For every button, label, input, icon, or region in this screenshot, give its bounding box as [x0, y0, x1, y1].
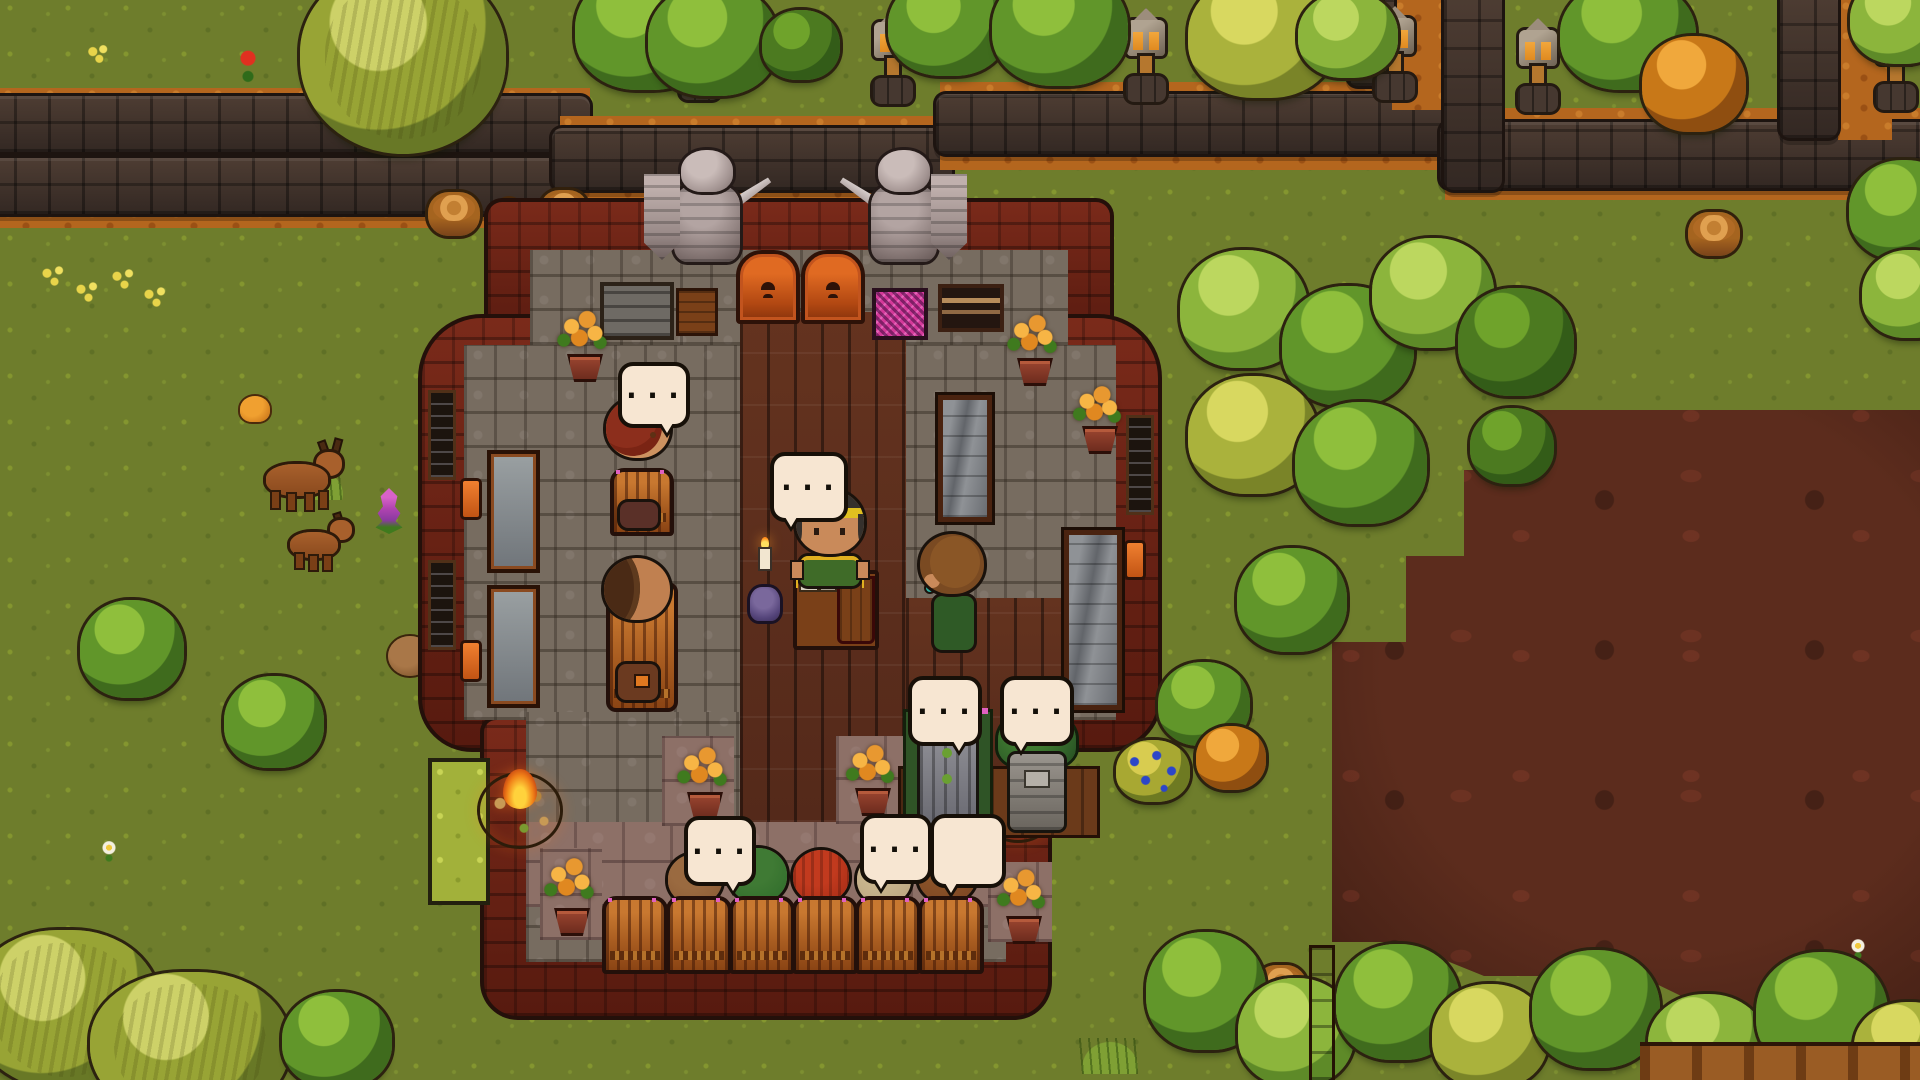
daisy-flower	[1845, 935, 1871, 959]
wall-cabinet[interactable]	[600, 282, 674, 340]
wall-lamp	[460, 478, 482, 520]
daisy-flower	[95, 836, 123, 862]
long-table[interactable]	[487, 585, 540, 708]
window	[938, 284, 1004, 332]
candle-stand	[748, 545, 782, 621]
villager-fur-collar[interactable]	[602, 558, 672, 704]
wall-window	[428, 390, 456, 480]
tree	[1862, 250, 1920, 338]
deer-adult[interactable]	[258, 442, 362, 518]
campfire[interactable]	[480, 760, 560, 846]
speech-bubble: ...	[684, 816, 756, 886]
flower-pot	[676, 744, 728, 820]
yellow-flowers	[108, 265, 138, 293]
yellow-flowers	[38, 262, 68, 290]
speech-bubble: ...	[860, 814, 932, 884]
game-viewport: ... ... ... ... ... ...	[0, 0, 1920, 1080]
speech-bubble: ...	[618, 362, 690, 428]
tree	[1298, 0, 1398, 78]
speech-bubble-empty	[930, 814, 1006, 888]
chair[interactable]	[918, 896, 984, 974]
tree	[1295, 402, 1427, 524]
red-flower	[232, 46, 264, 84]
autumn-tree	[1642, 36, 1746, 132]
speech-bubble: ...	[908, 676, 982, 746]
display-case[interactable]	[938, 395, 992, 522]
flower-pot	[556, 308, 608, 382]
speech-bubble: ...	[770, 452, 848, 522]
grass-tuft	[1078, 1038, 1142, 1074]
seated-patron-head[interactable]	[793, 850, 849, 902]
villager-brown-hair[interactable]	[918, 534, 988, 654]
wall-window	[1126, 415, 1154, 515]
flower-pot	[1072, 384, 1122, 454]
tree-stump[interactable]	[1688, 212, 1740, 256]
wooden-pole	[1312, 948, 1332, 1080]
lantern-post	[1124, 6, 1168, 106]
berry-bush[interactable]	[1116, 740, 1190, 802]
tree	[648, 0, 778, 96]
bush	[762, 10, 840, 80]
tree	[282, 992, 392, 1080]
wall-window	[428, 560, 456, 650]
speech-bubble: ...	[1000, 676, 1074, 746]
flower-pot	[1006, 312, 1058, 386]
magenta-poster[interactable]	[872, 288, 928, 340]
deer-fawn[interactable]	[284, 512, 368, 578]
tree	[1432, 984, 1548, 1080]
display-case[interactable]	[1064, 530, 1122, 710]
tree	[1237, 548, 1347, 652]
bush	[1470, 408, 1554, 484]
chair[interactable]	[602, 896, 668, 974]
chair[interactable]	[792, 896, 858, 974]
wall-lamp	[460, 640, 482, 682]
autumn-bush	[1196, 726, 1266, 790]
tree	[1458, 288, 1574, 396]
tree	[888, 0, 1008, 76]
wooden-fence	[1640, 1042, 1920, 1080]
flower-pot	[845, 742, 895, 816]
long-table[interactable]	[487, 450, 540, 573]
tree-stump[interactable]	[428, 192, 480, 236]
purple-lupine-flower	[374, 488, 404, 534]
chair[interactable]	[855, 896, 921, 974]
chair[interactable]	[729, 896, 795, 974]
tree	[80, 600, 184, 698]
lantern-post	[1516, 16, 1560, 116]
mushroom[interactable]	[240, 396, 270, 422]
yellow-flowers	[72, 278, 102, 306]
wall-shelf[interactable]	[676, 288, 718, 336]
yellow-flowers	[85, 42, 111, 66]
knight-statue-left	[648, 150, 766, 272]
flower-pot	[543, 854, 595, 936]
knight-statue-right	[845, 150, 963, 272]
wall-lamp	[1124, 540, 1146, 580]
tree	[992, 0, 1128, 86]
tree	[224, 676, 324, 768]
chair[interactable]	[666, 896, 732, 974]
stone-wall	[1444, 0, 1502, 190]
yellow-flowers	[140, 283, 170, 311]
stone-wall	[1780, 0, 1838, 138]
stone-wall	[0, 96, 590, 152]
